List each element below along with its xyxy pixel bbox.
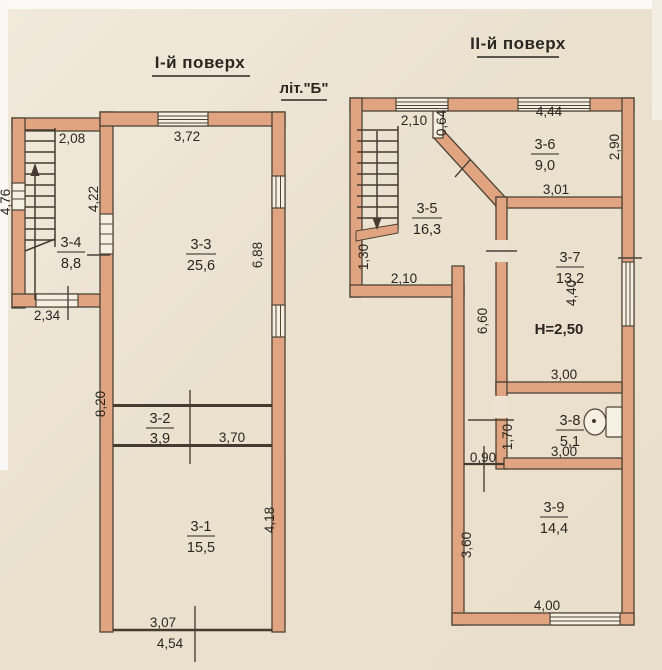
room-code: 3-3 bbox=[191, 237, 212, 253]
room-code: 3-2 bbox=[150, 411, 171, 427]
window-symbol bbox=[622, 262, 634, 326]
partition-wall bbox=[113, 444, 272, 447]
room-area: 16,3 bbox=[413, 222, 441, 238]
dim-room36-bottom: 3,01 bbox=[543, 182, 569, 197]
room-area: 15,5 bbox=[187, 540, 215, 556]
window-symbol bbox=[396, 98, 448, 111]
room-code: 3-1 bbox=[191, 519, 212, 535]
dim-room39-left: 3,60 bbox=[459, 532, 474, 558]
dim-top-left-window: 2,10 bbox=[401, 113, 427, 128]
dim-room32-width: 3,70 bbox=[219, 430, 245, 445]
dim-bottom-inner: 3,07 bbox=[150, 615, 176, 630]
wall bbox=[350, 285, 464, 297]
dim-hall-bottom: 2,10 bbox=[391, 271, 417, 286]
window-symbol bbox=[272, 176, 285, 208]
wall bbox=[12, 118, 25, 308]
wall bbox=[452, 266, 464, 625]
room-area: 8,8 bbox=[61, 256, 81, 272]
room-area: 9,0 bbox=[535, 158, 555, 174]
dim-top-window: 3,72 bbox=[174, 129, 200, 144]
dim-room37-bottom: 3,00 bbox=[551, 367, 577, 382]
room-code: 3-4 bbox=[61, 235, 82, 251]
dim-left-lower: 8,20 bbox=[93, 391, 108, 417]
wall bbox=[350, 98, 634, 111]
dim-right-upper: 2,90 bbox=[607, 134, 622, 160]
ceiling-height-note: H=2,50 bbox=[535, 321, 584, 338]
scan-edge-left bbox=[0, 0, 8, 470]
floor-plan-drawing: І-й поверх літ."Б" 2,08 3,72 4,76 4,22 6… bbox=[0, 0, 662, 670]
room-area: 13,2 bbox=[556, 271, 584, 287]
room-area: 14,4 bbox=[540, 521, 568, 537]
wall bbox=[504, 458, 622, 469]
room-area: 5,1 bbox=[560, 434, 580, 450]
dim-annex-top: 2,08 bbox=[59, 131, 85, 146]
scan-edge-top bbox=[0, 0, 662, 9]
dim-corridor-wall: 6,60 bbox=[475, 308, 490, 334]
wall bbox=[622, 98, 634, 625]
wall bbox=[496, 197, 622, 208]
window-symbol bbox=[550, 613, 620, 625]
dim-right-upper: 6,88 bbox=[250, 242, 265, 268]
wall bbox=[496, 197, 507, 393]
wall bbox=[100, 112, 113, 632]
room-code: 3-5 bbox=[417, 201, 438, 217]
floor1-title: І-й поверх bbox=[155, 53, 246, 72]
dim-left-segment: 1,30 bbox=[356, 244, 371, 270]
partition-wall bbox=[113, 404, 272, 407]
door-opening bbox=[495, 396, 508, 418]
building-letter: літ."Б" bbox=[280, 80, 329, 97]
floor2-title: ІІ-й поверх bbox=[470, 34, 566, 53]
dim-bottom-total: 4,54 bbox=[157, 636, 184, 651]
dim-annex-bottom: 2,34 bbox=[34, 308, 61, 323]
dim-step: 0,90 bbox=[470, 450, 496, 465]
toilet-tank bbox=[606, 407, 622, 437]
dim-room31-right: 4,18 bbox=[262, 507, 277, 533]
room-code: 3-6 bbox=[535, 137, 556, 153]
dim-room39-bottom: 4,00 bbox=[534, 598, 560, 613]
room-area: 25,6 bbox=[187, 258, 215, 274]
wall bbox=[496, 382, 622, 393]
dim-annex-left: 4,76 bbox=[0, 189, 13, 215]
room-code: 3-9 bbox=[544, 500, 565, 516]
dim-top-right-window: 4,44 bbox=[536, 104, 563, 119]
window-symbol bbox=[12, 183, 25, 210]
toilet-drain-dot bbox=[592, 419, 596, 423]
room-area: 3,9 bbox=[150, 431, 170, 447]
dim-shared-wall: 4,22 bbox=[86, 186, 101, 212]
room-code: 3-7 bbox=[560, 250, 581, 266]
room-code: 3-8 bbox=[560, 413, 581, 429]
scanned-floor-plan-page: І-й поверх літ."Б" 2,08 3,72 4,76 4,22 6… bbox=[0, 0, 662, 670]
dim-wc-wall: 1,70 bbox=[500, 424, 515, 450]
window-symbol bbox=[272, 305, 285, 337]
wall bbox=[12, 118, 104, 131]
scan-edge-right bbox=[652, 0, 662, 120]
dim-entry-stub: 0,64 bbox=[434, 109, 449, 136]
